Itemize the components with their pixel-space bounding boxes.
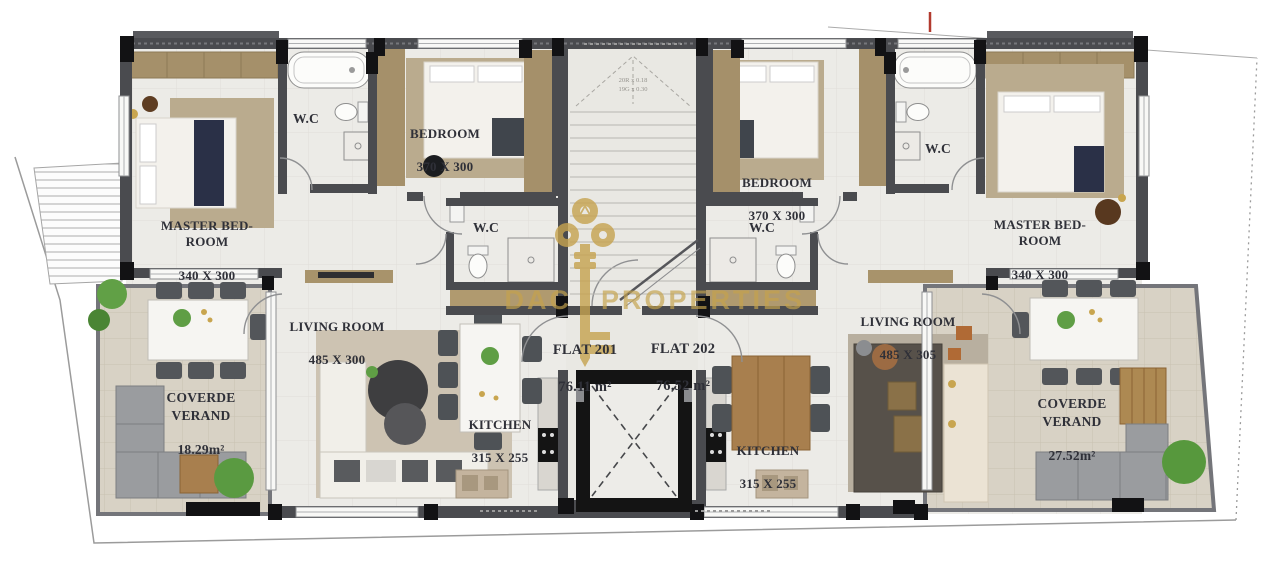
cooktop	[706, 428, 726, 462]
room-label-wc-bath-right: W.C	[925, 140, 951, 157]
room-label-veranda-right: COVERDE VERAND 27.52m²	[1038, 378, 1107, 482]
room-label-kitchen-left: KITCHEN 315 X 255	[469, 400, 532, 483]
shower	[344, 132, 372, 160]
toilet	[777, 254, 795, 278]
deck	[1120, 368, 1166, 424]
stair-note: 20R x 0.18 19G x 0.30	[618, 76, 647, 94]
patio-table	[1030, 298, 1138, 360]
toilet	[469, 254, 487, 278]
plant	[1162, 440, 1206, 484]
threshold	[1112, 498, 1144, 512]
threshold	[186, 502, 260, 516]
flat-202-label: FLAT 202 76.52 m²	[651, 321, 715, 414]
room-label-veranda-left: COVERDE VERAND 18.29m²	[167, 372, 236, 476]
wardrobe	[377, 48, 405, 186]
room-label-living-left: LIVING ROOM 485 X 300	[289, 302, 384, 385]
room-label-kitchen-right: KITCHEN 315 X 255	[737, 426, 800, 509]
room-label-wc-hall-left: W.C	[473, 219, 499, 236]
sideboard	[868, 270, 953, 283]
wardrobe	[524, 50, 552, 192]
shower	[892, 132, 920, 160]
cooktop	[538, 428, 558, 462]
room-label-wc-hall-right: W.C	[749, 219, 775, 236]
shower	[508, 238, 554, 282]
shower	[710, 238, 756, 282]
patio-table	[148, 300, 248, 360]
flat-201-label: FLAT 201 76.11 m²	[553, 322, 617, 415]
room-label-master-left: MASTER BED- ROOM 340 X 300	[161, 201, 253, 301]
brand-text-properties: PROPERTIES	[601, 285, 805, 316]
room-label-bedroom-left: BEDROOM 370 X 300	[410, 109, 480, 192]
room-label-wc-bath-left: W.C	[293, 110, 319, 127]
brand-text-dac: DAC	[440, 285, 572, 316]
wardrobe	[712, 50, 740, 192]
pergola-louvers	[34, 163, 122, 284]
toilet	[907, 104, 929, 121]
floor-plan: DAC PROPERTIES MASTER BED- ROOM 340 X 30…	[0, 0, 1280, 562]
wardrobe	[859, 48, 887, 186]
room-label-living-right: LIVING ROOM 485 X 305	[860, 297, 955, 380]
room-label-master-right: MASTER BED- ROOM 340 X 300	[994, 200, 1086, 300]
toilet	[335, 104, 357, 121]
